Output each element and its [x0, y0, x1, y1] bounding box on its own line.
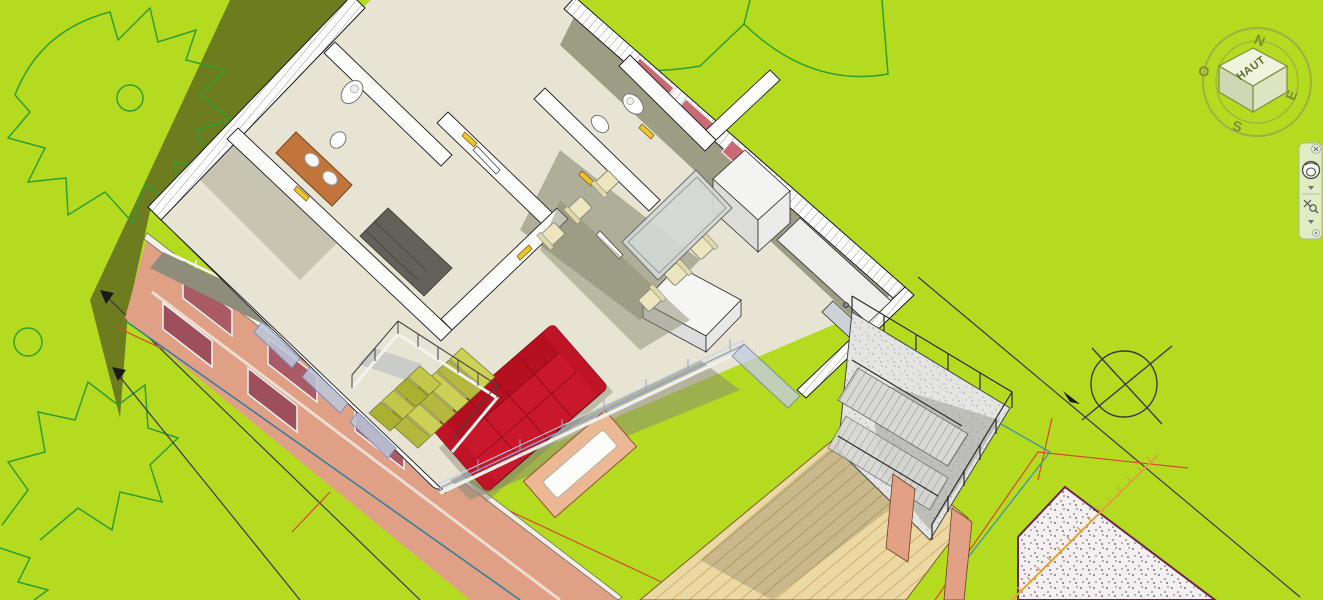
nav-options-icon[interactable]	[1313, 230, 1320, 237]
navigation-bar[interactable]	[1299, 143, 1322, 239]
close-icon[interactable]	[1312, 145, 1321, 154]
cad-3d-viewport[interactable]: N E S O HAUT	[0, 0, 1323, 600]
steering-wheel-icon[interactable]	[1303, 162, 1320, 179]
3d-scene[interactable]: N E S O HAUT	[0, 0, 1323, 600]
